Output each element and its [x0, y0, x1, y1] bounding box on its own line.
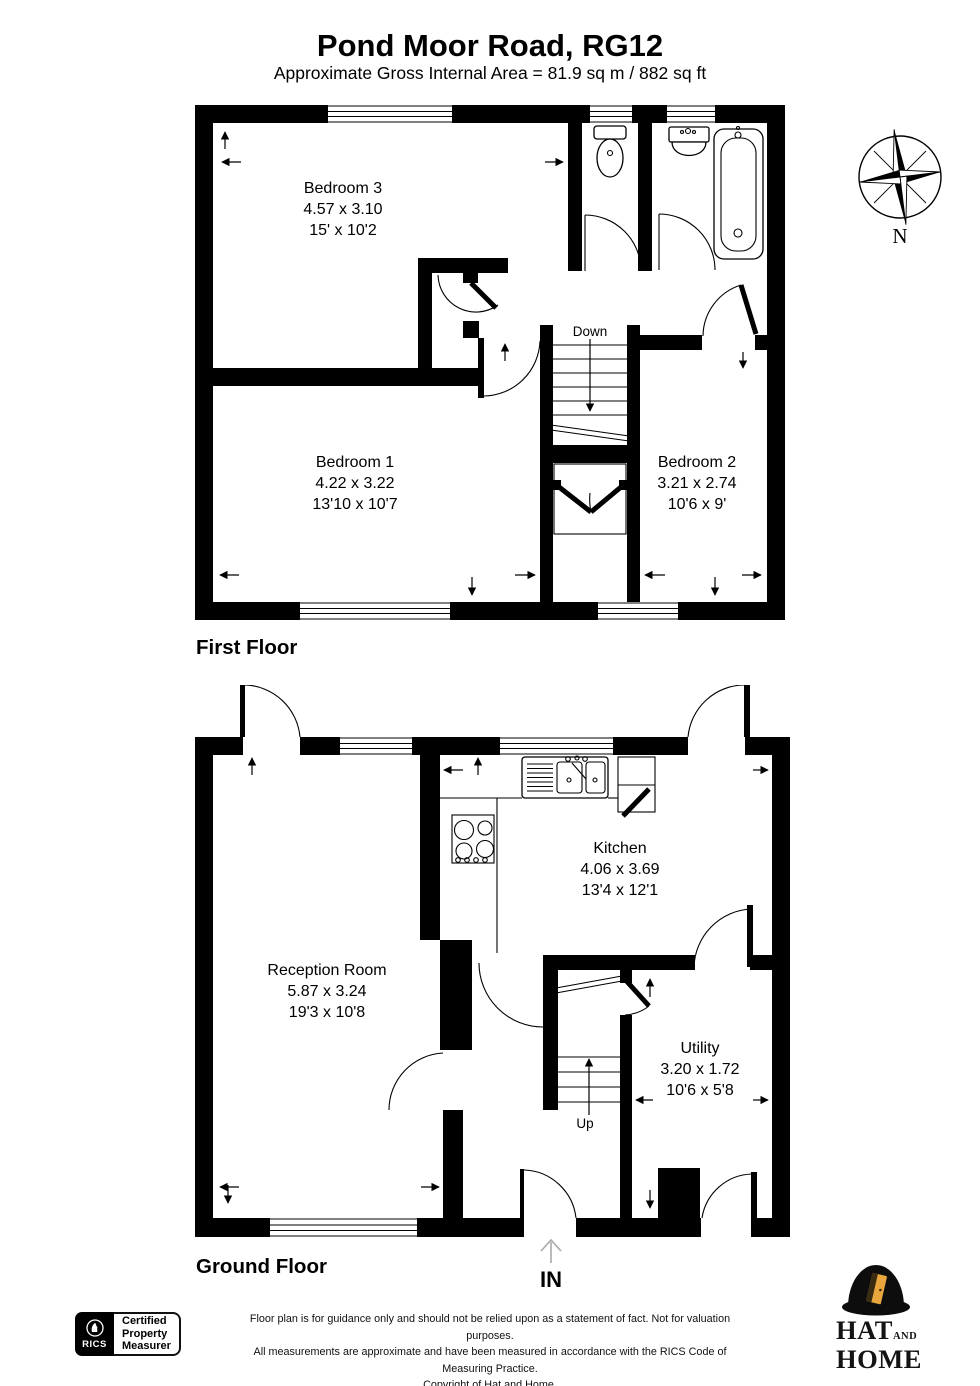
room-imperial: 10'6 x 9': [668, 496, 727, 513]
room-metric: 4.57 x 3.10: [303, 201, 382, 218]
ground-floor-plan: Up: [195, 685, 795, 1290]
toilet-icon: [594, 126, 626, 177]
ground-floor-walls: [195, 737, 790, 1237]
utility-external-door: [701, 1172, 757, 1237]
door-bathroom: [659, 214, 715, 270]
ground-floor-label: Ground Floor: [196, 1255, 327, 1278]
certification-line: Certified: [122, 1315, 171, 1328]
staircase-up: Up: [556, 976, 622, 1131]
window: [270, 1218, 417, 1237]
compass-rose-icon: N: [843, 115, 958, 247]
room-label-reception: Reception Room 5.87 x 3.24 19'3 x 10'8: [267, 962, 386, 1021]
agency-word-home: HOME: [836, 1344, 922, 1374]
room-label-utility: Utility 3.20 x 1.72 10'6 x 5'8: [660, 1040, 739, 1099]
staircase-down: Down: [551, 324, 629, 441]
disclaimer-line: All measurements are approximate and hav…: [235, 1344, 745, 1377]
door-wc: [585, 215, 641, 271]
room-imperial: 13'10 x 10'7: [312, 496, 397, 513]
first-floor-label: First Floor: [196, 636, 297, 659]
certification-line: Property: [122, 1328, 171, 1341]
utility-kitchen-door: [694, 905, 753, 967]
hob-icon: [452, 815, 494, 863]
room-name: Reception Room: [267, 962, 386, 979]
bowler-hat-icon: [836, 1253, 936, 1317]
back-door-reception: [240, 685, 300, 755]
compass-north-label: N: [892, 224, 907, 247]
room-metric: 4.06 x 3.69: [580, 861, 659, 878]
room-metric: 4.22 x 3.22: [315, 475, 394, 492]
window: [500, 737, 613, 755]
room-metric: 5.87 x 3.24: [287, 983, 366, 1000]
room-name: Bedroom 1: [316, 454, 394, 471]
page-subtitle: Approximate Gross Internal Area = 81.9 s…: [0, 63, 980, 84]
window: [667, 105, 715, 123]
stairs-down-label: Down: [573, 324, 608, 339]
agency-logo: HATAND HOME: [836, 1253, 966, 1375]
agency-word-hat: HAT: [836, 1315, 893, 1345]
first-floor-doors: [438, 214, 756, 396]
certification-line: Measurer: [122, 1340, 171, 1353]
rics-brand-label: RICS: [82, 1339, 107, 1350]
door-bedroom2: [703, 285, 756, 336]
stairs-up-label: Up: [576, 1116, 593, 1131]
window: [300, 602, 450, 620]
back-door-kitchen: [688, 685, 750, 755]
door-bedroom1: [484, 341, 540, 396]
basin-icon: [669, 127, 709, 156]
room-imperial: 15' x 10'2: [309, 222, 377, 239]
airing-cupboard: [553, 464, 627, 534]
room-label-bedroom3: Bedroom 3 4.57 x 3.10 15' x 10'2: [303, 180, 382, 239]
rics-certification: Certified Property Measurer: [114, 1312, 181, 1356]
reception-door: [389, 1053, 443, 1110]
dimension-arrows: [220, 132, 761, 595]
window: [598, 602, 678, 620]
page-title: Pond Moor Road, RG12: [0, 28, 980, 64]
room-imperial: 10'6 x 5'8: [666, 1082, 734, 1099]
window: [328, 105, 452, 123]
room-name: Bedroom 2: [658, 454, 736, 471]
disclaimer-text: Floor plan is for guidance only and shou…: [235, 1311, 745, 1386]
front-door: [520, 1169, 576, 1237]
floorplan-page: Pond Moor Road, RG12 Approximate Gross I…: [0, 0, 980, 1386]
room-metric: 3.20 x 1.72: [660, 1061, 739, 1078]
room-name: Kitchen: [593, 840, 646, 857]
room-name: Utility: [680, 1040, 719, 1057]
kitchen-hall-door: [479, 963, 543, 1027]
entrance-arrow-icon: [541, 1240, 561, 1263]
entrance-label: IN: [540, 1267, 562, 1290]
first-floor-plan: Down: [195, 105, 785, 665]
disclaimer-line: Floor plan is for guidance only and shou…: [235, 1311, 745, 1344]
room-metric: 3.21 x 2.74: [657, 475, 736, 492]
room-imperial: 19'3 x 10'8: [289, 1004, 365, 1021]
utility-angled-door: [622, 976, 649, 1015]
first-floor-walls: [195, 105, 785, 620]
rics-logo: RICS: [75, 1312, 114, 1356]
room-label-kitchen: Kitchen 4.06 x 3.69 13'4 x 12'1: [580, 840, 659, 899]
disclaimer-line: Copyright of Hat and Home.: [235, 1377, 745, 1386]
room-label-bedroom2: Bedroom 2 3.21 x 2.74 10'6 x 9': [657, 454, 736, 513]
rics-lion-icon: [85, 1318, 105, 1338]
entrance-marker: IN: [540, 1240, 562, 1290]
room-name: Bedroom 3: [304, 180, 382, 197]
agency-wordmark: HATAND HOME: [836, 1319, 966, 1375]
window: [340, 737, 412, 755]
agency-word-and: AND: [893, 1331, 917, 1342]
room-imperial: 13'4 x 12'1: [582, 882, 658, 899]
room-label-bedroom1: Bedroom 1 4.22 x 3.22 13'10 x 10'7: [312, 454, 397, 513]
kitchen-sink-icon: [522, 756, 608, 798]
window: [590, 105, 632, 123]
bathtub-icon: [714, 127, 763, 260]
rics-badge: RICS Certified Property Measurer: [75, 1312, 181, 1356]
